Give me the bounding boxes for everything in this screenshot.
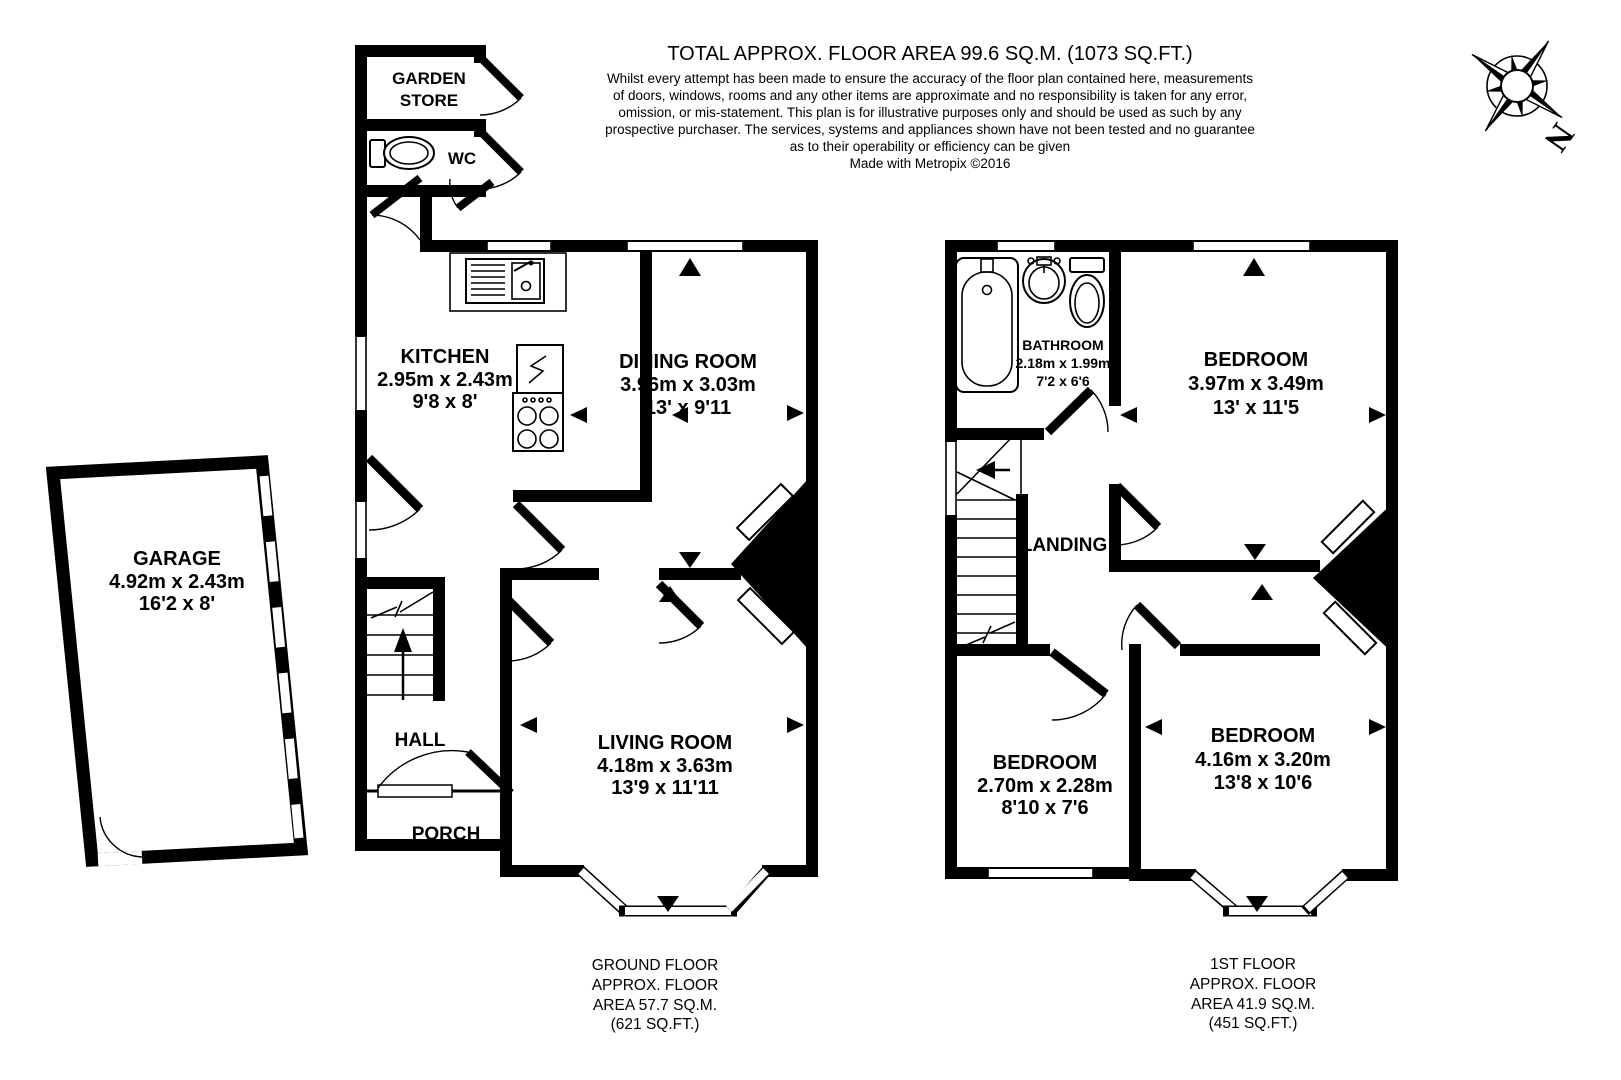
svg-text:13' x 9'11: 13' x 9'11 bbox=[645, 397, 731, 419]
disclaimer-line: omission, or mis-statement. This plan is… bbox=[618, 105, 1242, 120]
dining-room-label: DINING ROOM 3.96m x 3.03m 13' x 9'11 bbox=[619, 351, 757, 419]
garage: GARAGE 4.92m x 2.43m 16'2 x 8' bbox=[53, 462, 301, 860]
svg-text:4.92m x 2.43m: 4.92m x 2.43m bbox=[109, 571, 245, 593]
kitchen-label: KITCHEN 2.95m x 2.43m 9'8 x 8' bbox=[377, 346, 513, 413]
bedroom-rear-label: BEDROOM 4.16m x 3.20m 13'8 x 10'6 bbox=[1195, 725, 1331, 794]
porch-label: PORCH bbox=[412, 824, 481, 845]
svg-text:APPROX. FLOOR: APPROX. FLOOR bbox=[592, 977, 719, 994]
ground-floor-walls bbox=[355, 45, 818, 877]
svg-text:4.18m x 3.63m: 4.18m x 3.63m bbox=[597, 755, 733, 777]
living-room-label: LIVING ROOM 4.18m x 3.63m 13'9 x 11'11 bbox=[597, 732, 733, 799]
compass-hub bbox=[1501, 70, 1533, 102]
ground-floor-plan: GARDEN STORE WC KITCHEN 2.95m x 2.43m 9'… bbox=[53, 45, 818, 1033]
hall-label: HALL bbox=[395, 730, 446, 751]
total-area-title: TOTAL APPROX. FLOOR AREA 99.6 SQ.M. (107… bbox=[667, 43, 1192, 65]
stove-icon bbox=[513, 393, 563, 451]
svg-text:BEDROOM: BEDROOM bbox=[1204, 349, 1308, 371]
living-bay-window bbox=[579, 869, 768, 911]
svg-text:9'8 x 8': 9'8 x 8' bbox=[412, 391, 477, 413]
svg-text:AREA 41.9 SQ.M.: AREA 41.9 SQ.M. bbox=[1191, 996, 1315, 1013]
stairs-ground bbox=[367, 592, 433, 700]
kitchen-window bbox=[487, 242, 551, 250]
wc-door bbox=[480, 131, 521, 189]
ground-floor-footer: GROUND FLOOR APPROX. FLOOR AREA 57.7 SQ.… bbox=[592, 957, 719, 1033]
wc-label: WC bbox=[448, 149, 476, 168]
front-door bbox=[367, 751, 511, 797]
svg-text:1ST FLOOR: 1ST FLOOR bbox=[1210, 956, 1296, 973]
svg-text:7'2 x 6'6: 7'2 x 6'6 bbox=[1036, 373, 1090, 389]
floorplan-page: TOTAL APPROX. FLOOR AREA 99.6 SQ.M. (107… bbox=[0, 0, 1621, 1080]
svg-text:BEDROOM: BEDROOM bbox=[993, 752, 1097, 774]
toilet-icon bbox=[370, 137, 434, 169]
stairs-up-arrow bbox=[394, 628, 412, 652]
sink-icon bbox=[450, 253, 566, 311]
svg-text:KITCHEN: KITCHEN bbox=[401, 346, 490, 368]
stairwell-side-window bbox=[944, 442, 958, 515]
bathtub-icon bbox=[956, 258, 1018, 392]
chimney-breast bbox=[731, 468, 818, 660]
bathroom-window bbox=[997, 242, 1055, 250]
svg-text:3.96m x 3.03m: 3.96m x 3.03m bbox=[620, 374, 756, 396]
garage-door-gap bbox=[98, 857, 142, 859]
bedroom-small-label: BEDROOM 2.70m x 2.28m 8'10 x 7'6 bbox=[977, 752, 1113, 819]
svg-text:16'2 x 8': 16'2 x 8' bbox=[139, 593, 215, 615]
door-gap bbox=[1109, 406, 1121, 484]
bedroom-bay-window bbox=[1191, 873, 1347, 911]
first-floor-plan: BATHROOM 2.18m x 1.99m 7'2 x 6'6 BEDROOM… bbox=[944, 240, 1398, 1032]
disclaimer-line: of doors, windows, rooms and any other i… bbox=[613, 88, 1247, 103]
garden-store-label: GARDEN STORE bbox=[392, 69, 466, 110]
stairs-first bbox=[957, 434, 1021, 649]
svg-text:13' x 11'5: 13' x 11'5 bbox=[1213, 397, 1299, 419]
bedroom-small-window bbox=[988, 869, 1093, 877]
svg-text:GARAGE: GARAGE bbox=[133, 548, 221, 570]
door-gap bbox=[599, 568, 659, 580]
svg-text:STORE: STORE bbox=[400, 91, 458, 110]
svg-text:2.18m x 1.99m: 2.18m x 1.99m bbox=[1016, 355, 1111, 371]
kitchen-hall-door bbox=[516, 504, 562, 569]
kitchen-side-window bbox=[354, 337, 368, 410]
landing-label: LANDING bbox=[1021, 535, 1108, 556]
bedroom-front-window bbox=[1193, 242, 1310, 250]
side-passage-door bbox=[369, 458, 420, 530]
svg-text:2.95m x 2.43m: 2.95m x 2.43m bbox=[377, 369, 513, 391]
svg-text:8'10 x 7'6: 8'10 x 7'6 bbox=[1001, 797, 1088, 819]
svg-text:BEDROOM: BEDROOM bbox=[1211, 725, 1315, 747]
disclaimer-line: prospective purchaser. The services, sys… bbox=[605, 122, 1255, 137]
compass-rose: N bbox=[1440, 9, 1593, 162]
chimney-breast-first bbox=[1313, 498, 1398, 658]
svg-text:DINING ROOM: DINING ROOM bbox=[619, 351, 757, 373]
first-floor-footer: 1ST FLOOR APPROX. FLOOR AREA 41.9 SQ.M. … bbox=[1190, 956, 1317, 1032]
svg-text:4.16m x 3.20m: 4.16m x 3.20m bbox=[1195, 749, 1331, 771]
toilet-first-icon bbox=[1070, 258, 1104, 327]
basin-icon bbox=[1023, 257, 1065, 303]
svg-text:13'8 x 10'6: 13'8 x 10'6 bbox=[1214, 772, 1313, 794]
svg-text:3.97m x 3.49m: 3.97m x 3.49m bbox=[1188, 373, 1324, 395]
dining-window bbox=[627, 242, 743, 250]
svg-text:2.70m x 2.28m: 2.70m x 2.28m bbox=[977, 775, 1113, 797]
north-label: N bbox=[1536, 116, 1581, 158]
disclaimer-line: as to their operability or efficiency ca… bbox=[790, 139, 1070, 154]
credit-line: Made with Metropix ©2016 bbox=[850, 156, 1011, 171]
svg-text:13'9 x 11'11: 13'9 x 11'11 bbox=[611, 777, 718, 799]
bathroom-door bbox=[1048, 390, 1108, 432]
disclaimer-line: Whilst every attempt has been made to en… bbox=[607, 71, 1253, 86]
hall-side-window bbox=[354, 502, 368, 558]
header: TOTAL APPROX. FLOOR AREA 99.6 SQ.M. (107… bbox=[605, 43, 1255, 171]
hall-living-door bbox=[508, 600, 551, 661]
svg-text:LIVING ROOM: LIVING ROOM bbox=[598, 732, 732, 754]
fridge-icon bbox=[517, 345, 563, 393]
svg-text:GARDEN: GARDEN bbox=[392, 69, 466, 88]
svg-text:AREA 57.7 SQ.M.: AREA 57.7 SQ.M. bbox=[593, 997, 717, 1014]
bedroom-main-label: BEDROOM 3.97m x 3.49m 13' x 11'5 bbox=[1188, 349, 1324, 419]
svg-text:(621 SQ.FT.): (621 SQ.FT.) bbox=[611, 1016, 700, 1033]
bedroom-small-door bbox=[1052, 652, 1106, 720]
svg-text:GROUND FLOOR: GROUND FLOOR bbox=[592, 957, 719, 974]
garden-store-door bbox=[480, 57, 521, 115]
bathroom-label: BATHROOM 2.18m x 1.99m 7'2 x 6'6 bbox=[1016, 337, 1111, 389]
svg-text:(451 SQ.FT.): (451 SQ.FT.) bbox=[1209, 1015, 1298, 1032]
bedroom-main-door bbox=[1117, 486, 1158, 545]
bedroom-rear-door bbox=[1122, 605, 1178, 650]
svg-text:APPROX. FLOOR: APPROX. FLOOR bbox=[1190, 976, 1317, 993]
svg-text:BATHROOM: BATHROOM bbox=[1022, 337, 1103, 353]
